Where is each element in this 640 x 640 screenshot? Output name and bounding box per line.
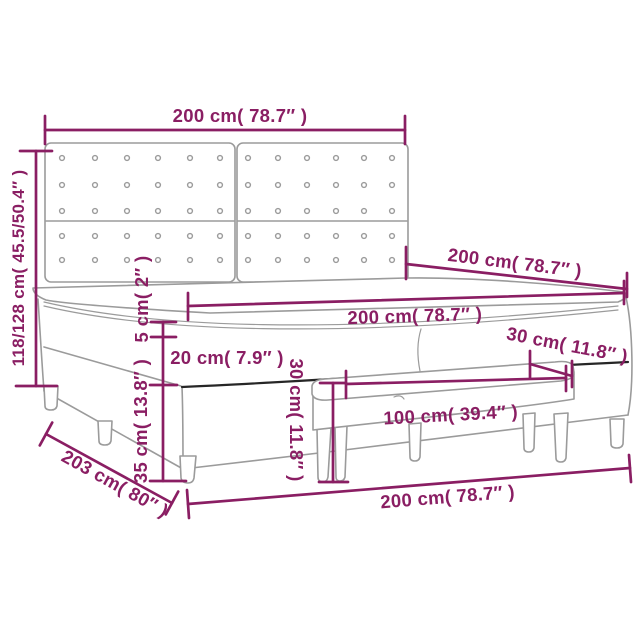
headboard-button — [125, 183, 130, 188]
headboard-button — [188, 183, 193, 188]
dim-label-bench-height: 30 cm( 11.8″ ) — [286, 358, 307, 481]
base-left-top-edge — [44, 347, 181, 386]
bed-diagram-canvas: 200 cm( 78.7″ ) 118/128 cm( 45.5/50.4″ )… — [0, 0, 640, 640]
headboard-button — [125, 156, 130, 161]
dim-label-base-height: 35 cm( 13.8″ ) — [130, 359, 151, 483]
bed-dimension-diagram: 200 cm( 78.7″ ) 118/128 cm( 45.5/50.4″ )… — [0, 0, 640, 640]
headboard-button — [334, 234, 339, 239]
headboard-button — [125, 234, 130, 239]
headboard-button — [60, 183, 65, 188]
headboard-button — [246, 234, 251, 239]
headboard-button — [156, 209, 161, 214]
headboard-button — [60, 234, 65, 239]
headboard-button — [276, 234, 281, 239]
bench-leg-mid-back — [409, 423, 421, 461]
bench-leg-right-front — [554, 413, 568, 462]
headboard-button — [305, 258, 310, 263]
headboard-button — [305, 234, 310, 239]
bed-leg-front-corner — [180, 456, 196, 483]
bench-leg-left-front — [317, 428, 331, 482]
headboard-button — [362, 183, 367, 188]
headboard-button — [93, 234, 98, 239]
headboard-button — [390, 258, 395, 263]
headboard-button — [60, 258, 65, 263]
headboard-button — [188, 258, 193, 263]
dim-label-topper-thickness: 5 cm( 2″ ) — [131, 256, 152, 343]
headboard-button — [276, 156, 281, 161]
headboard-button — [390, 209, 395, 214]
headboard-button — [334, 156, 339, 161]
headboard-button — [93, 258, 98, 263]
headboard-right-panel — [237, 143, 408, 282]
dim-label-headboard-width: 200 cm( 78.7″ ) — [173, 105, 308, 126]
headboard-button — [60, 156, 65, 161]
headboard-button — [246, 183, 251, 188]
bed-leg-right — [610, 419, 624, 448]
headboard-button — [93, 209, 98, 214]
dim-label-mattress-thickness: 20 cm( 7.9″ ) — [170, 347, 284, 368]
headboard-button — [334, 258, 339, 263]
mattress-middle-seam — [418, 329, 421, 371]
headboard-button — [218, 258, 223, 263]
headboard-button — [188, 234, 193, 239]
headboard-button — [188, 156, 193, 161]
headboard-button — [334, 209, 339, 214]
dim-label-headboard-height: 118/128 cm( 45.5/50.4″ ) — [9, 170, 28, 367]
headboard-button — [362, 156, 367, 161]
bed-leg-back-left — [44, 386, 58, 410]
headboard-button — [276, 209, 281, 214]
headboard-button — [218, 183, 223, 188]
headboard — [45, 143, 408, 282]
headboard-button — [305, 183, 310, 188]
base-left-back-edge — [38, 299, 44, 391]
headboard-button — [362, 258, 367, 263]
headboard-button — [246, 156, 251, 161]
headboard-button — [362, 209, 367, 214]
headboard-button — [60, 209, 65, 214]
headboard-button — [305, 156, 310, 161]
headboard-button — [390, 234, 395, 239]
headboard-button — [156, 258, 161, 263]
headboard-button — [218, 234, 223, 239]
headboard-button — [276, 183, 281, 188]
headboard-button — [246, 209, 251, 214]
dim-label-total-length: 203 cm( 80″ ) — [58, 445, 172, 521]
headboard-button — [390, 183, 395, 188]
headboard-button — [156, 183, 161, 188]
bench-leg-left-back — [335, 426, 347, 481]
headboard-button — [218, 156, 223, 161]
headboard-button — [93, 183, 98, 188]
headboard-button — [218, 209, 223, 214]
headboard-button — [93, 156, 98, 161]
headboard-button — [246, 258, 251, 263]
headboard-button — [125, 258, 130, 263]
headboard-button — [390, 156, 395, 161]
headboard-button — [276, 258, 281, 263]
headboard-button — [156, 156, 161, 161]
dim-label-mattress-width: 200 cm( 78.7″ ) — [347, 303, 482, 328]
dim-label-bench-depth: 30 cm( 11.8″ ) — [505, 323, 630, 367]
bed-leg-mid-left — [98, 421, 112, 445]
headboard-button — [334, 183, 339, 188]
mattress — [33, 278, 626, 371]
bench-leg-right-back — [523, 413, 535, 452]
headboard-button — [305, 209, 310, 214]
headboard-button — [156, 234, 161, 239]
headboard-button — [125, 209, 130, 214]
headboard-button — [188, 209, 193, 214]
headboard-button — [362, 234, 367, 239]
